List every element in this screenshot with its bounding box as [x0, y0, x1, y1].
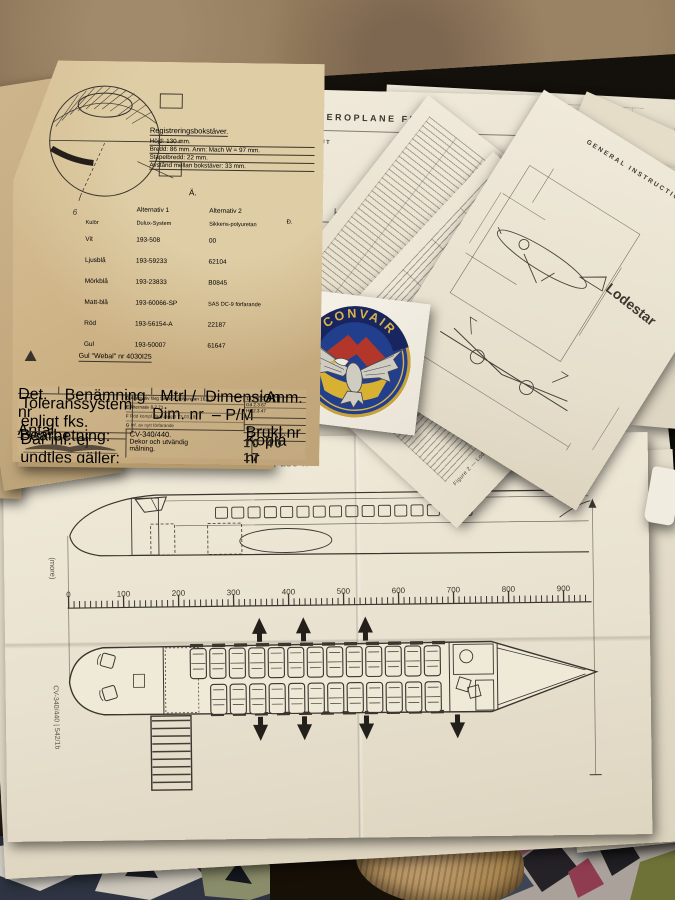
photo-vignette [0, 0, 675, 900]
photo-of-aircraft-documents: ND EQUIPMENT (Cont'd) AEROPLANE FLIG W A… [0, 0, 675, 900]
